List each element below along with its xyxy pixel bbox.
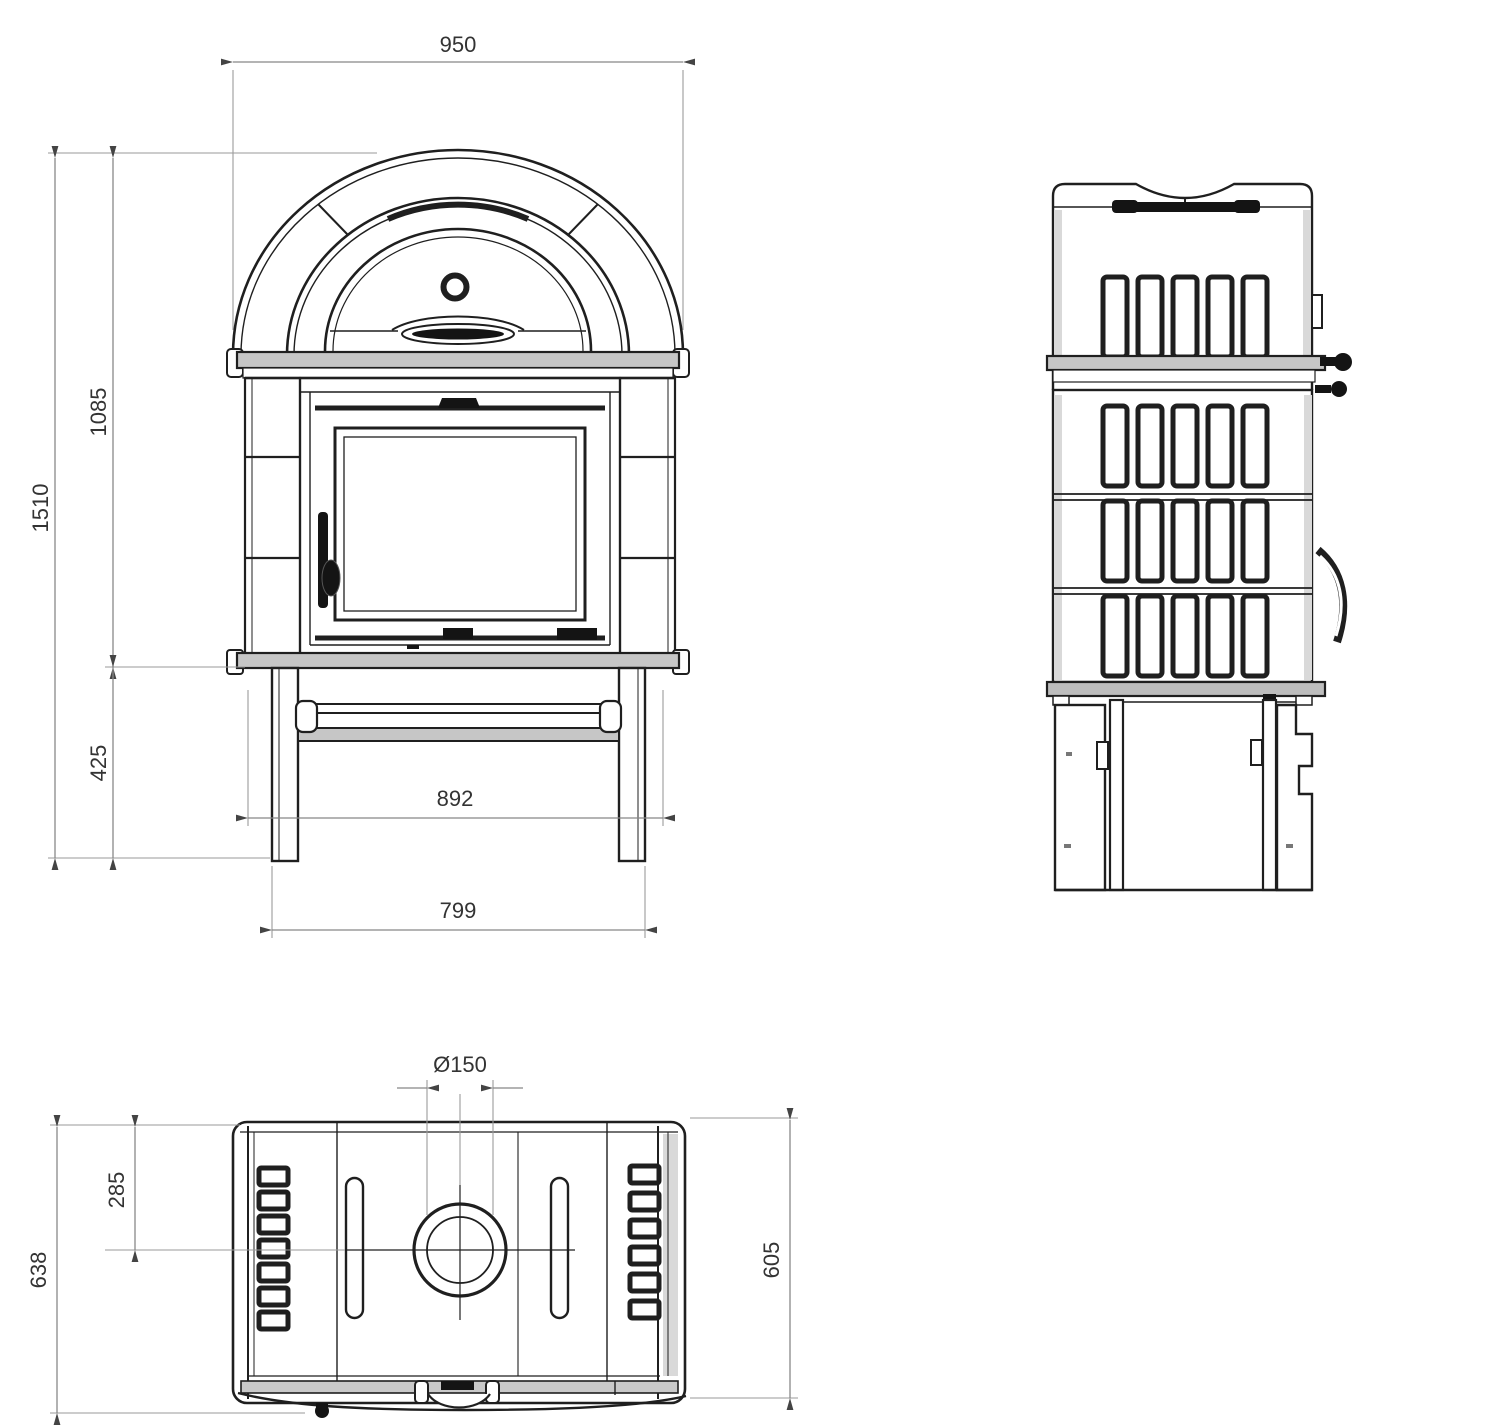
top-rib-right — [551, 1178, 568, 1318]
dim-body-height: 1085 — [86, 158, 113, 667]
side-body — [1053, 390, 1343, 682]
side-leg-rear — [1263, 700, 1276, 890]
door-latch — [557, 628, 597, 640]
dim-flue-center-offset: 285 — [104, 1127, 135, 1250]
side-leg-front — [1110, 700, 1123, 890]
dim-overall-height-label: 1510 — [28, 484, 53, 533]
dim-overall-depth: 638 — [26, 1127, 57, 1413]
dim-flue-center-offset-label: 285 — [104, 1172, 129, 1209]
legs-and-shelf — [272, 668, 645, 861]
top-plate — [233, 1122, 685, 1403]
door-handle-grip — [322, 560, 340, 596]
door-frame — [300, 378, 620, 655]
arch-tile-joint-right — [568, 204, 598, 235]
top-view: Ø150 285 638 605 — [26, 1052, 798, 1418]
dim-base-height-label: 425 — [86, 745, 111, 782]
side-base — [1047, 682, 1325, 890]
tile-column-left — [245, 378, 300, 660]
shelf-bracket-left — [296, 701, 317, 732]
front-view: 950 1510 1085 425 892 799 — [28, 32, 689, 938]
dim-overall-depth-label: 638 — [26, 1252, 51, 1289]
top-rib-left — [346, 1178, 363, 1318]
lower-shelf-rail — [298, 704, 619, 713]
dim-base-height: 425 — [86, 667, 113, 858]
bottom-air-vent — [443, 628, 473, 639]
dim-leg-span-width-label: 799 — [440, 898, 477, 923]
drawing-sheet: 950 1510 1085 425 892 799 — [0, 0, 1500, 1427]
shelf-bracket-right — [600, 701, 621, 732]
dim-overall-width: 950 — [233, 32, 683, 62]
leg-right — [619, 668, 645, 861]
damper-knob — [1334, 353, 1352, 371]
top-air-vent — [438, 398, 480, 408]
dim-base-shelf-width: 892 — [248, 786, 663, 818]
dim-overall-width-label: 950 — [440, 32, 477, 57]
leg-left — [272, 668, 298, 861]
front-foot-knob — [315, 1404, 329, 1418]
door-hinge — [1312, 295, 1322, 328]
firebox-body — [245, 378, 675, 660]
door-glass-outer — [335, 428, 585, 620]
arch-tile-joint-left — [318, 204, 348, 235]
dim-body-height-label: 1085 — [86, 388, 111, 437]
side-leg-panel-left — [1055, 705, 1105, 890]
tile-column-right — [620, 378, 675, 660]
dim-flue-diameter: Ø150 — [397, 1052, 523, 1088]
top-door-handle — [428, 1394, 490, 1408]
dim-flue-diameter-label: Ø150 — [433, 1052, 487, 1077]
air-control-knob — [444, 276, 467, 299]
damper-knob-lower — [1331, 381, 1347, 397]
door-glass-inner — [344, 437, 576, 611]
side-leg-panel-right — [1277, 705, 1312, 890]
dim-top-plate-depth-label: 605 — [759, 1242, 784, 1279]
lower-shelf — [298, 728, 619, 741]
side-view — [1047, 184, 1352, 890]
dim-overall-height: 1510 — [28, 158, 55, 858]
stove-technical-drawing: 950 1510 1085 425 892 799 — [0, 0, 1500, 1427]
arch-dome — [233, 150, 683, 355]
mantel-shelf — [227, 349, 689, 378]
dim-leg-span-width: 799 — [272, 898, 645, 930]
dim-top-plate-depth: 605 — [759, 1120, 790, 1398]
dim-base-shelf-width-label: 892 — [437, 786, 474, 811]
